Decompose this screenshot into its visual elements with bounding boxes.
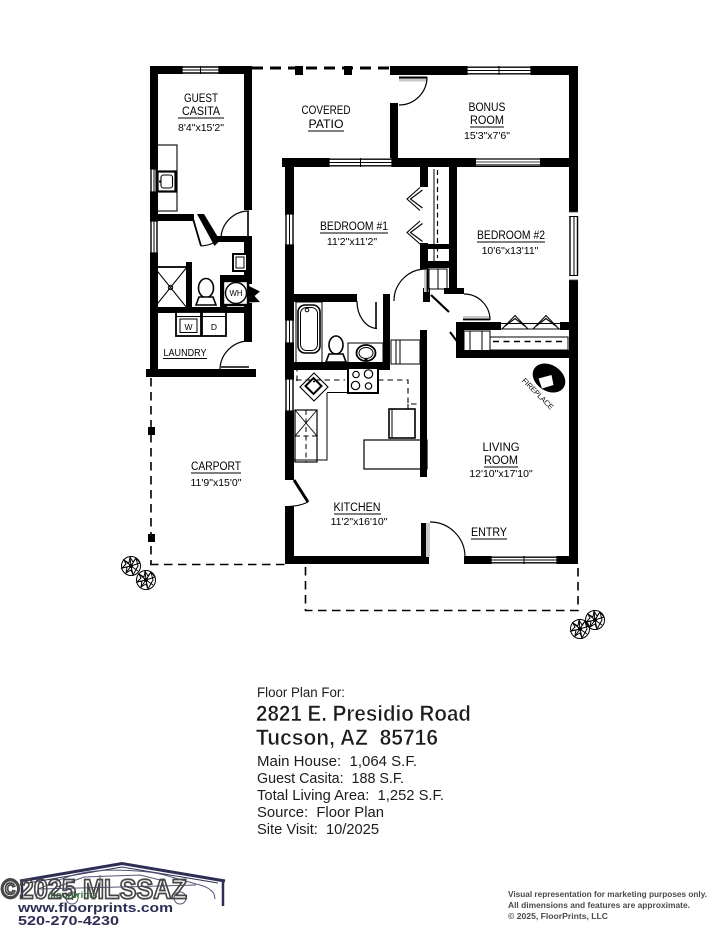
svg-text:10'6"x13'11": 10'6"x13'11" bbox=[482, 245, 539, 257]
svg-text:LIVING: LIVING bbox=[483, 442, 520, 454]
svg-text:All dimensions and features ar: All dimensions and features are approxim… bbox=[508, 900, 690, 910]
svg-text:ENTRY: ENTRY bbox=[471, 527, 507, 539]
svg-text:Main House: 1,064 S.F.: Main House: 1,064 S.F. bbox=[257, 753, 417, 770]
svg-text:Site Visit: 10/2025: Site Visit: 10/2025 bbox=[257, 821, 379, 838]
svg-text:© 2025, FloorPrints, LLC: © 2025, FloorPrints, LLC bbox=[508, 911, 609, 921]
svg-text:11'2"x16'10": 11'2"x16'10" bbox=[331, 516, 388, 528]
svg-text:Tucson, AZ 85716: Tucson, AZ 85716 bbox=[256, 725, 438, 750]
svg-text:LAUNDRY: LAUNDRY bbox=[164, 347, 207, 359]
svg-text:520-270-4230: 520-270-4230 bbox=[18, 914, 119, 928]
svg-text:ROOM: ROOM bbox=[470, 115, 504, 127]
svg-text:Source: Floor Plan: Source: Floor Plan bbox=[257, 804, 384, 821]
svg-text:11'2"x11'2": 11'2"x11'2" bbox=[327, 236, 377, 248]
svg-text:PATIO: PATIO bbox=[309, 119, 344, 131]
svg-text:15'3"x7'6": 15'3"x7'6" bbox=[464, 130, 510, 142]
svg-text:Visual representation for mark: Visual representation for marketing purp… bbox=[508, 889, 707, 899]
svg-text:GUEST: GUEST bbox=[184, 93, 218, 105]
svg-text:2821 E. Presidio Road: 2821 E. Presidio Road bbox=[256, 701, 471, 726]
svg-text:W: W bbox=[184, 322, 192, 332]
svg-text:12'10"x17'10": 12'10"x17'10" bbox=[469, 468, 533, 480]
svg-text:Guest Casita: 188 S.F.: Guest Casita: 188 S.F. bbox=[257, 770, 404, 787]
svg-text:COVERED: COVERED bbox=[302, 105, 351, 117]
svg-text:©2025 MLSSAZ: ©2025 MLSSAZ bbox=[1, 874, 187, 905]
svg-text:ROOM: ROOM bbox=[484, 455, 518, 467]
svg-text:Total Living Area: 1,252 S.F.: Total Living Area: 1,252 S.F. bbox=[257, 787, 444, 804]
svg-text:KITCHEN: KITCHEN bbox=[334, 502, 381, 514]
svg-text:Floor Plan For:: Floor Plan For: bbox=[257, 685, 345, 700]
svg-text:BONUS: BONUS bbox=[469, 102, 506, 114]
svg-text:11'9"x15'0": 11'9"x15'0" bbox=[191, 477, 242, 489]
svg-text:CARPORT: CARPORT bbox=[191, 461, 241, 473]
svg-text:BEDROOM #2: BEDROOM #2 bbox=[477, 230, 545, 242]
svg-text:CASITA: CASITA bbox=[182, 106, 220, 118]
svg-text:WH: WH bbox=[230, 289, 243, 298]
svg-text:BEDROOM #1: BEDROOM #1 bbox=[320, 221, 388, 233]
svg-text:D: D bbox=[211, 322, 217, 332]
svg-text:8'4"x15'2": 8'4"x15'2" bbox=[178, 122, 224, 134]
